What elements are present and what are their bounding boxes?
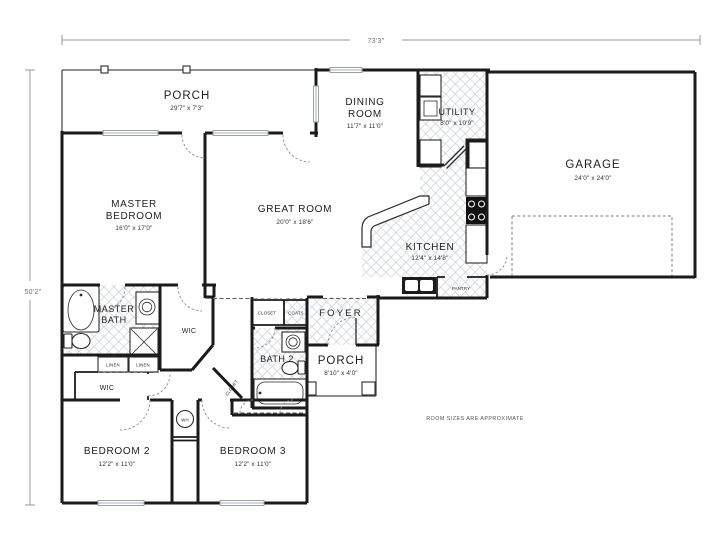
window: [220, 501, 264, 506]
dims-kitchen: 12'4" x 14'8": [411, 255, 448, 262]
water-heater-label: WH: [181, 417, 189, 422]
label-garage: GARAGE: [565, 159, 620, 171]
label-bedroom2: BEDROOM 2: [84, 446, 150, 457]
label-foyer: FOYER: [319, 308, 363, 319]
floor-plan: 73'3" 50'2": [0, 0, 724, 543]
label-wic-master: WIC: [182, 328, 197, 335]
shower-master: [130, 328, 158, 356]
window: [103, 131, 158, 136]
note-room-sizes: ROOM SIZES ARE APPROXIMATE: [426, 416, 524, 422]
bathtub-bath2: [254, 379, 306, 407]
kitchen-counter: [466, 168, 487, 196]
label-utility: UTILITY: [438, 107, 475, 117]
room-labels: PORCH 29'7" x 7'3" DINING ROOM 11'7" x 1…: [84, 90, 621, 468]
dims-porch-front: 8'10" x 4'0": [324, 370, 357, 377]
label-closet-hall: CLOSET: [258, 311, 277, 316]
window: [213, 131, 268, 136]
dims-porch-top: 29'7" x 7'3": [170, 105, 203, 112]
dims-bedroom3: 12'2" x 11'0": [235, 461, 272, 468]
washer: [420, 75, 441, 96]
window: [330, 68, 362, 73]
label-great-room: GREAT ROOM: [258, 204, 332, 215]
vanity-sink-master: [136, 292, 160, 324]
overall-width-label: 73'3": [367, 38, 384, 45]
label-coats: COATS: [288, 311, 303, 316]
toilet-master: [64, 334, 90, 349]
kitchen-sink: [402, 277, 436, 294]
label-dining-1: DINING: [345, 97, 384, 108]
label-porch-top: PORCH: [164, 90, 211, 102]
label-wic2: WIC: [100, 385, 115, 392]
label-linen-1: LINEN: [106, 363, 120, 368]
label-pantry: PANTRY: [452, 286, 470, 291]
porch-post: [183, 66, 190, 73]
label-bedroom3: BEDROOM 3: [220, 446, 286, 457]
porch-post: [362, 382, 375, 395]
kitchen-counter: [466, 225, 487, 263]
label-master-bedroom-1: MASTER: [111, 199, 157, 210]
dims-utility: 8'0" x 10'9": [440, 120, 473, 127]
label-master-bedroom-2: BEDROOM: [106, 211, 163, 222]
dims-great-room: 20'0" x 18'6": [276, 219, 313, 226]
garage-door-outline: [512, 216, 672, 276]
label-porch-front: PORCH: [318, 355, 365, 367]
dims-garage: 24'0" x 24'0": [574, 175, 611, 182]
dims-master-bedroom: 16'0" x 17'0": [115, 225, 152, 232]
dims-bedroom2: 12'2" x 11'0": [99, 461, 136, 468]
floor-plan-drawing: 73'3" 50'2": [0, 0, 724, 543]
label-linen-2: LINEN: [136, 363, 150, 368]
overall-height-label: 50'2": [24, 289, 41, 296]
label-master-bath-1: MASTER: [94, 304, 135, 314]
label-master-bath-2: BATH: [101, 315, 126, 325]
label-kitchen: KITCHEN: [406, 242, 455, 253]
utility-counter: [420, 140, 441, 167]
label-dining-2: ROOM: [348, 109, 382, 120]
vanity-sink-bath2: [282, 332, 305, 352]
label-bath2: BATH 2: [260, 354, 294, 364]
dims-dining: 11'7" x 11'0": [347, 123, 383, 130]
window: [314, 86, 319, 122]
stove: [466, 197, 487, 224]
water-heater: WH: [177, 411, 194, 428]
porch-post: [101, 66, 108, 73]
window: [98, 501, 144, 506]
